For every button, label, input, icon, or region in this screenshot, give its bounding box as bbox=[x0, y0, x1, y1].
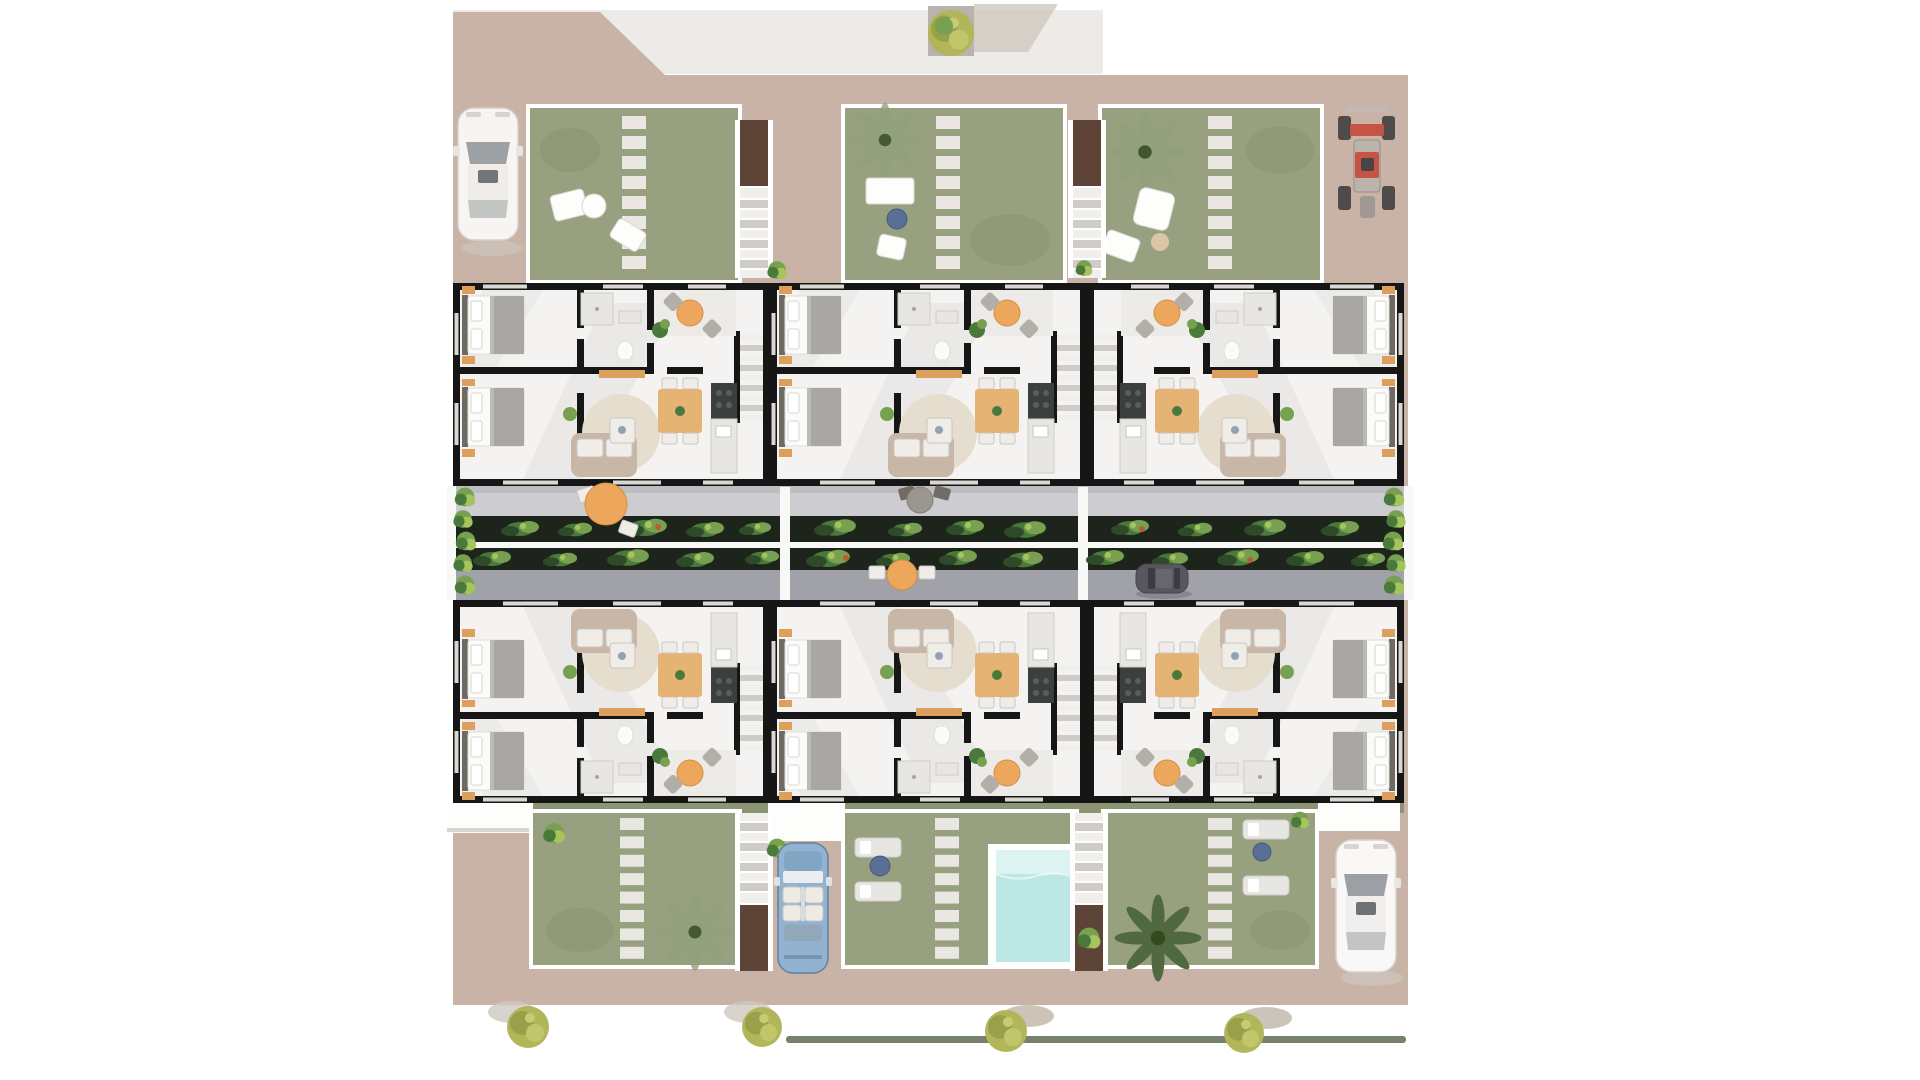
side-table bbox=[1151, 233, 1169, 251]
dark-car-street bbox=[1136, 564, 1192, 599]
site-plan-render bbox=[0, 0, 1920, 1080]
white-car-top-left bbox=[453, 108, 523, 240]
round-table bbox=[887, 209, 907, 229]
site-plan-canvas bbox=[0, 0, 1920, 1080]
terrace-divider-wall bbox=[1078, 487, 1088, 600]
street-end-bushes-right bbox=[1383, 486, 1413, 600]
patio-bottom-right bbox=[1318, 803, 1400, 831]
entry-stairs-bottom-left bbox=[735, 813, 773, 971]
blue-convertible bbox=[774, 843, 832, 973]
lounger-table bbox=[1253, 843, 1271, 861]
central-street bbox=[447, 483, 1413, 600]
white-car-bottom-right bbox=[1331, 840, 1401, 972]
patio-bottom-center bbox=[768, 803, 845, 841]
building-row-top bbox=[453, 283, 1404, 486]
garden-bottom-middle bbox=[841, 809, 1079, 969]
garden-table bbox=[582, 194, 606, 218]
lounger-table bbox=[870, 856, 890, 876]
garden-bottom-right bbox=[1101, 809, 1319, 982]
building-row-bottom bbox=[453, 600, 1404, 803]
street-end-bushes-left bbox=[447, 486, 476, 600]
garden-top-left bbox=[526, 104, 742, 284]
patio-bottom-left bbox=[447, 803, 533, 833]
entry-stairs-top-right bbox=[1068, 120, 1106, 278]
garden-bottom-left bbox=[529, 809, 742, 971]
boundary-hedge-line bbox=[786, 1036, 1406, 1043]
entry-stairs-top-left bbox=[735, 120, 773, 278]
swimming-pool bbox=[988, 844, 1079, 966]
terrace-divider-wall bbox=[780, 487, 790, 600]
garden-top-middle bbox=[841, 103, 1067, 285]
garden-top-right bbox=[1098, 104, 1324, 284]
